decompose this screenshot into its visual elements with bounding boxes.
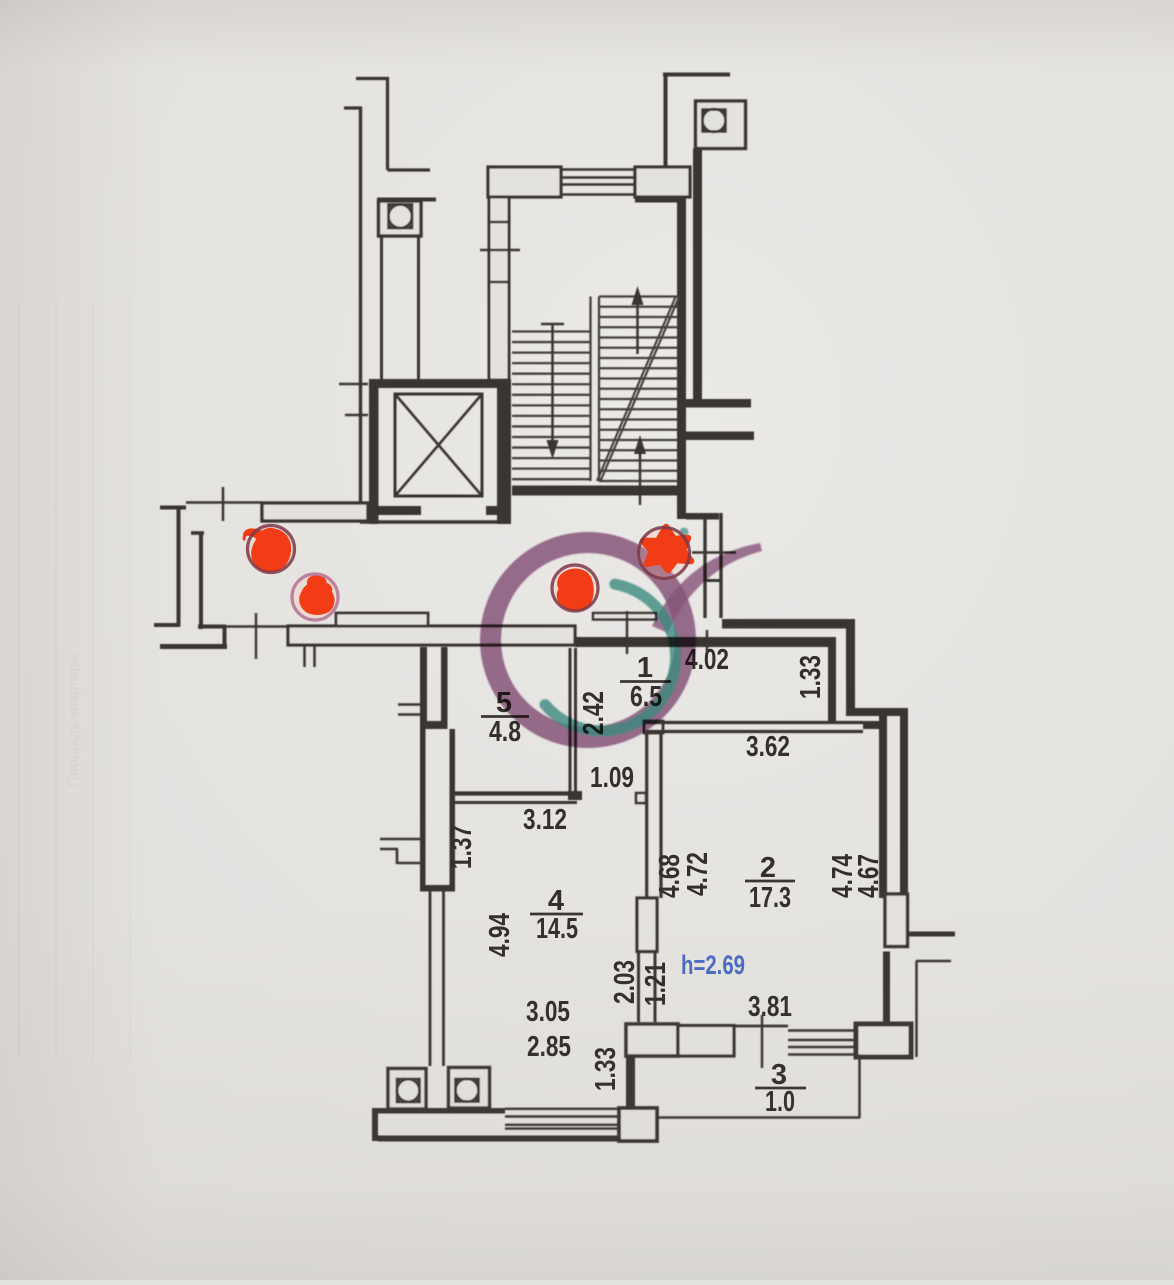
svg-text:4.72: 4.72 xyxy=(682,852,714,896)
svg-text:3.12: 3.12 xyxy=(523,804,567,836)
svg-text:4.8: 4.8 xyxy=(489,716,521,748)
svg-text:1.33: 1.33 xyxy=(795,655,827,699)
svg-text:1.09: 1.09 xyxy=(590,762,634,794)
svg-text:2: 2 xyxy=(760,852,776,884)
svg-text:1: 1 xyxy=(637,652,653,684)
svg-text:4.67: 4.67 xyxy=(853,854,885,898)
svg-text:3.62: 3.62 xyxy=(746,731,790,763)
svg-text:1.37: 1.37 xyxy=(446,825,478,869)
